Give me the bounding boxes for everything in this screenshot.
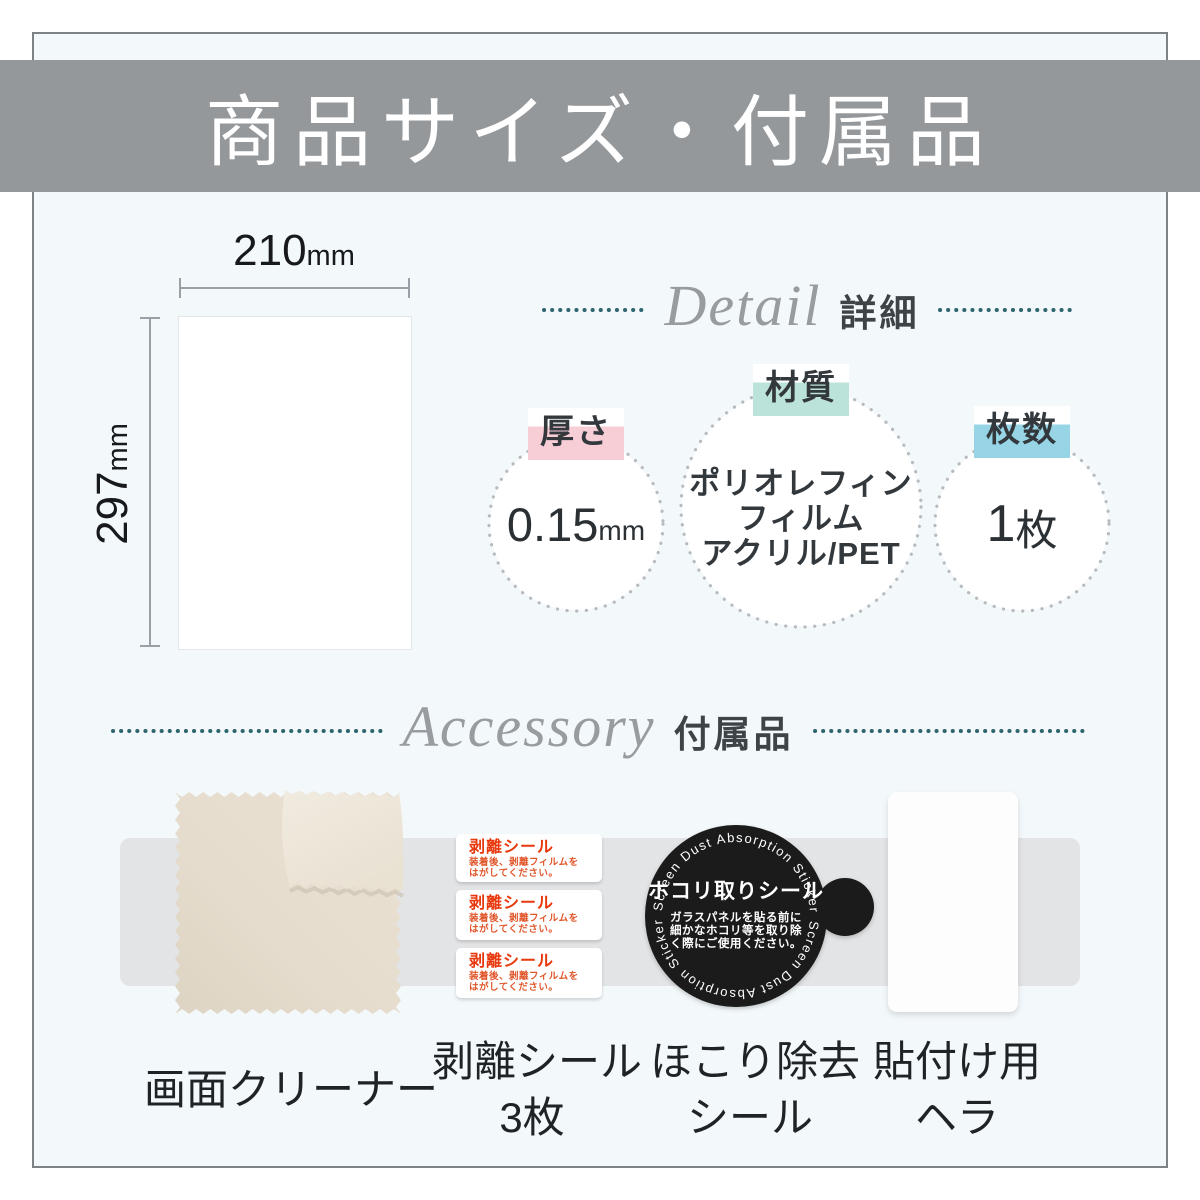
dust-removal-sticker-image: Screen Dust Absorption Sticker Screen Du… bbox=[616, 812, 881, 1024]
material-value: ポリオレフィン フィルム アクリル/PET bbox=[682, 388, 920, 626]
spec-circle-material: 材質 ポリオレフィン フィルム アクリル/PET bbox=[682, 388, 920, 626]
detail-script-title: Detail bbox=[665, 277, 822, 343]
dust-sticker-body-line: 細かなホコリ等を取り除 bbox=[670, 923, 802, 937]
item-label-release-stickers: 剥離シール 3枚 bbox=[432, 1034, 632, 1146]
dust-sticker-body-line: ガラスパネルを貼る前に bbox=[670, 910, 802, 924]
item-label-squeegee: 貼付け用 ヘラ bbox=[857, 1034, 1057, 1146]
width-unit: mm bbox=[307, 240, 355, 272]
dotted-line-right bbox=[812, 728, 1090, 734]
item-label-dust-sticker: ほこり除去 シール bbox=[650, 1034, 850, 1146]
detail-section-header: Detail 詳細 bbox=[440, 280, 1180, 340]
film-size-rectangle bbox=[178, 316, 412, 650]
accessory-script-title: Accessory bbox=[402, 698, 655, 764]
dust-sticker-body-line: く際にご使用ください。 bbox=[670, 936, 802, 950]
release-sticker-3: 剥離シール 装着後、剥離フィルムを はがしてください。 bbox=[456, 948, 602, 998]
accessory-heading: 付属品 bbox=[674, 704, 794, 758]
dust-sticker-title: ホコリ取りシール bbox=[648, 880, 824, 903]
squeegee-card-image bbox=[888, 792, 1018, 1012]
sheet-count-value: 1枚 bbox=[936, 438, 1108, 610]
height-unit: mm bbox=[102, 423, 134, 471]
detail-heading: 詳細 bbox=[839, 283, 919, 337]
thickness-value: 0.15mm bbox=[490, 438, 662, 610]
spec-circle-sheet-count: 枚数 1枚 bbox=[936, 438, 1108, 610]
release-sticker-1: 剥離シール 装着後、剥離フィルムを はがしてください。 bbox=[456, 834, 602, 882]
accessory-section-header: Accessory 付属品 bbox=[70, 698, 1130, 764]
dotted-line-right bbox=[937, 307, 1079, 313]
title-band: 商品サイズ・付属品 bbox=[0, 60, 1200, 192]
height-dimension: 297mm bbox=[88, 404, 132, 564]
width-value: 210 bbox=[233, 226, 306, 275]
width-measure-line bbox=[179, 278, 410, 298]
height-measure-line bbox=[140, 317, 160, 647]
release-sticker-2: 剥離シール 装着後、剥離フィルムを はがしてください。 bbox=[456, 890, 602, 940]
dotted-line-left bbox=[541, 307, 647, 313]
cloth-folded-corner bbox=[282, 790, 403, 892]
width-dimension: 210mm bbox=[178, 226, 410, 276]
dotted-line-left bbox=[110, 728, 384, 734]
height-value: 297 bbox=[88, 471, 137, 544]
page-title: 商品サイズ・付属品 bbox=[205, 70, 995, 182]
spec-circle-thickness: 厚さ 0.15mm bbox=[490, 438, 662, 610]
item-label-cleaner: 画面クリーナー bbox=[111, 1062, 471, 1118]
cleaning-cloth-image bbox=[163, 786, 413, 1022]
